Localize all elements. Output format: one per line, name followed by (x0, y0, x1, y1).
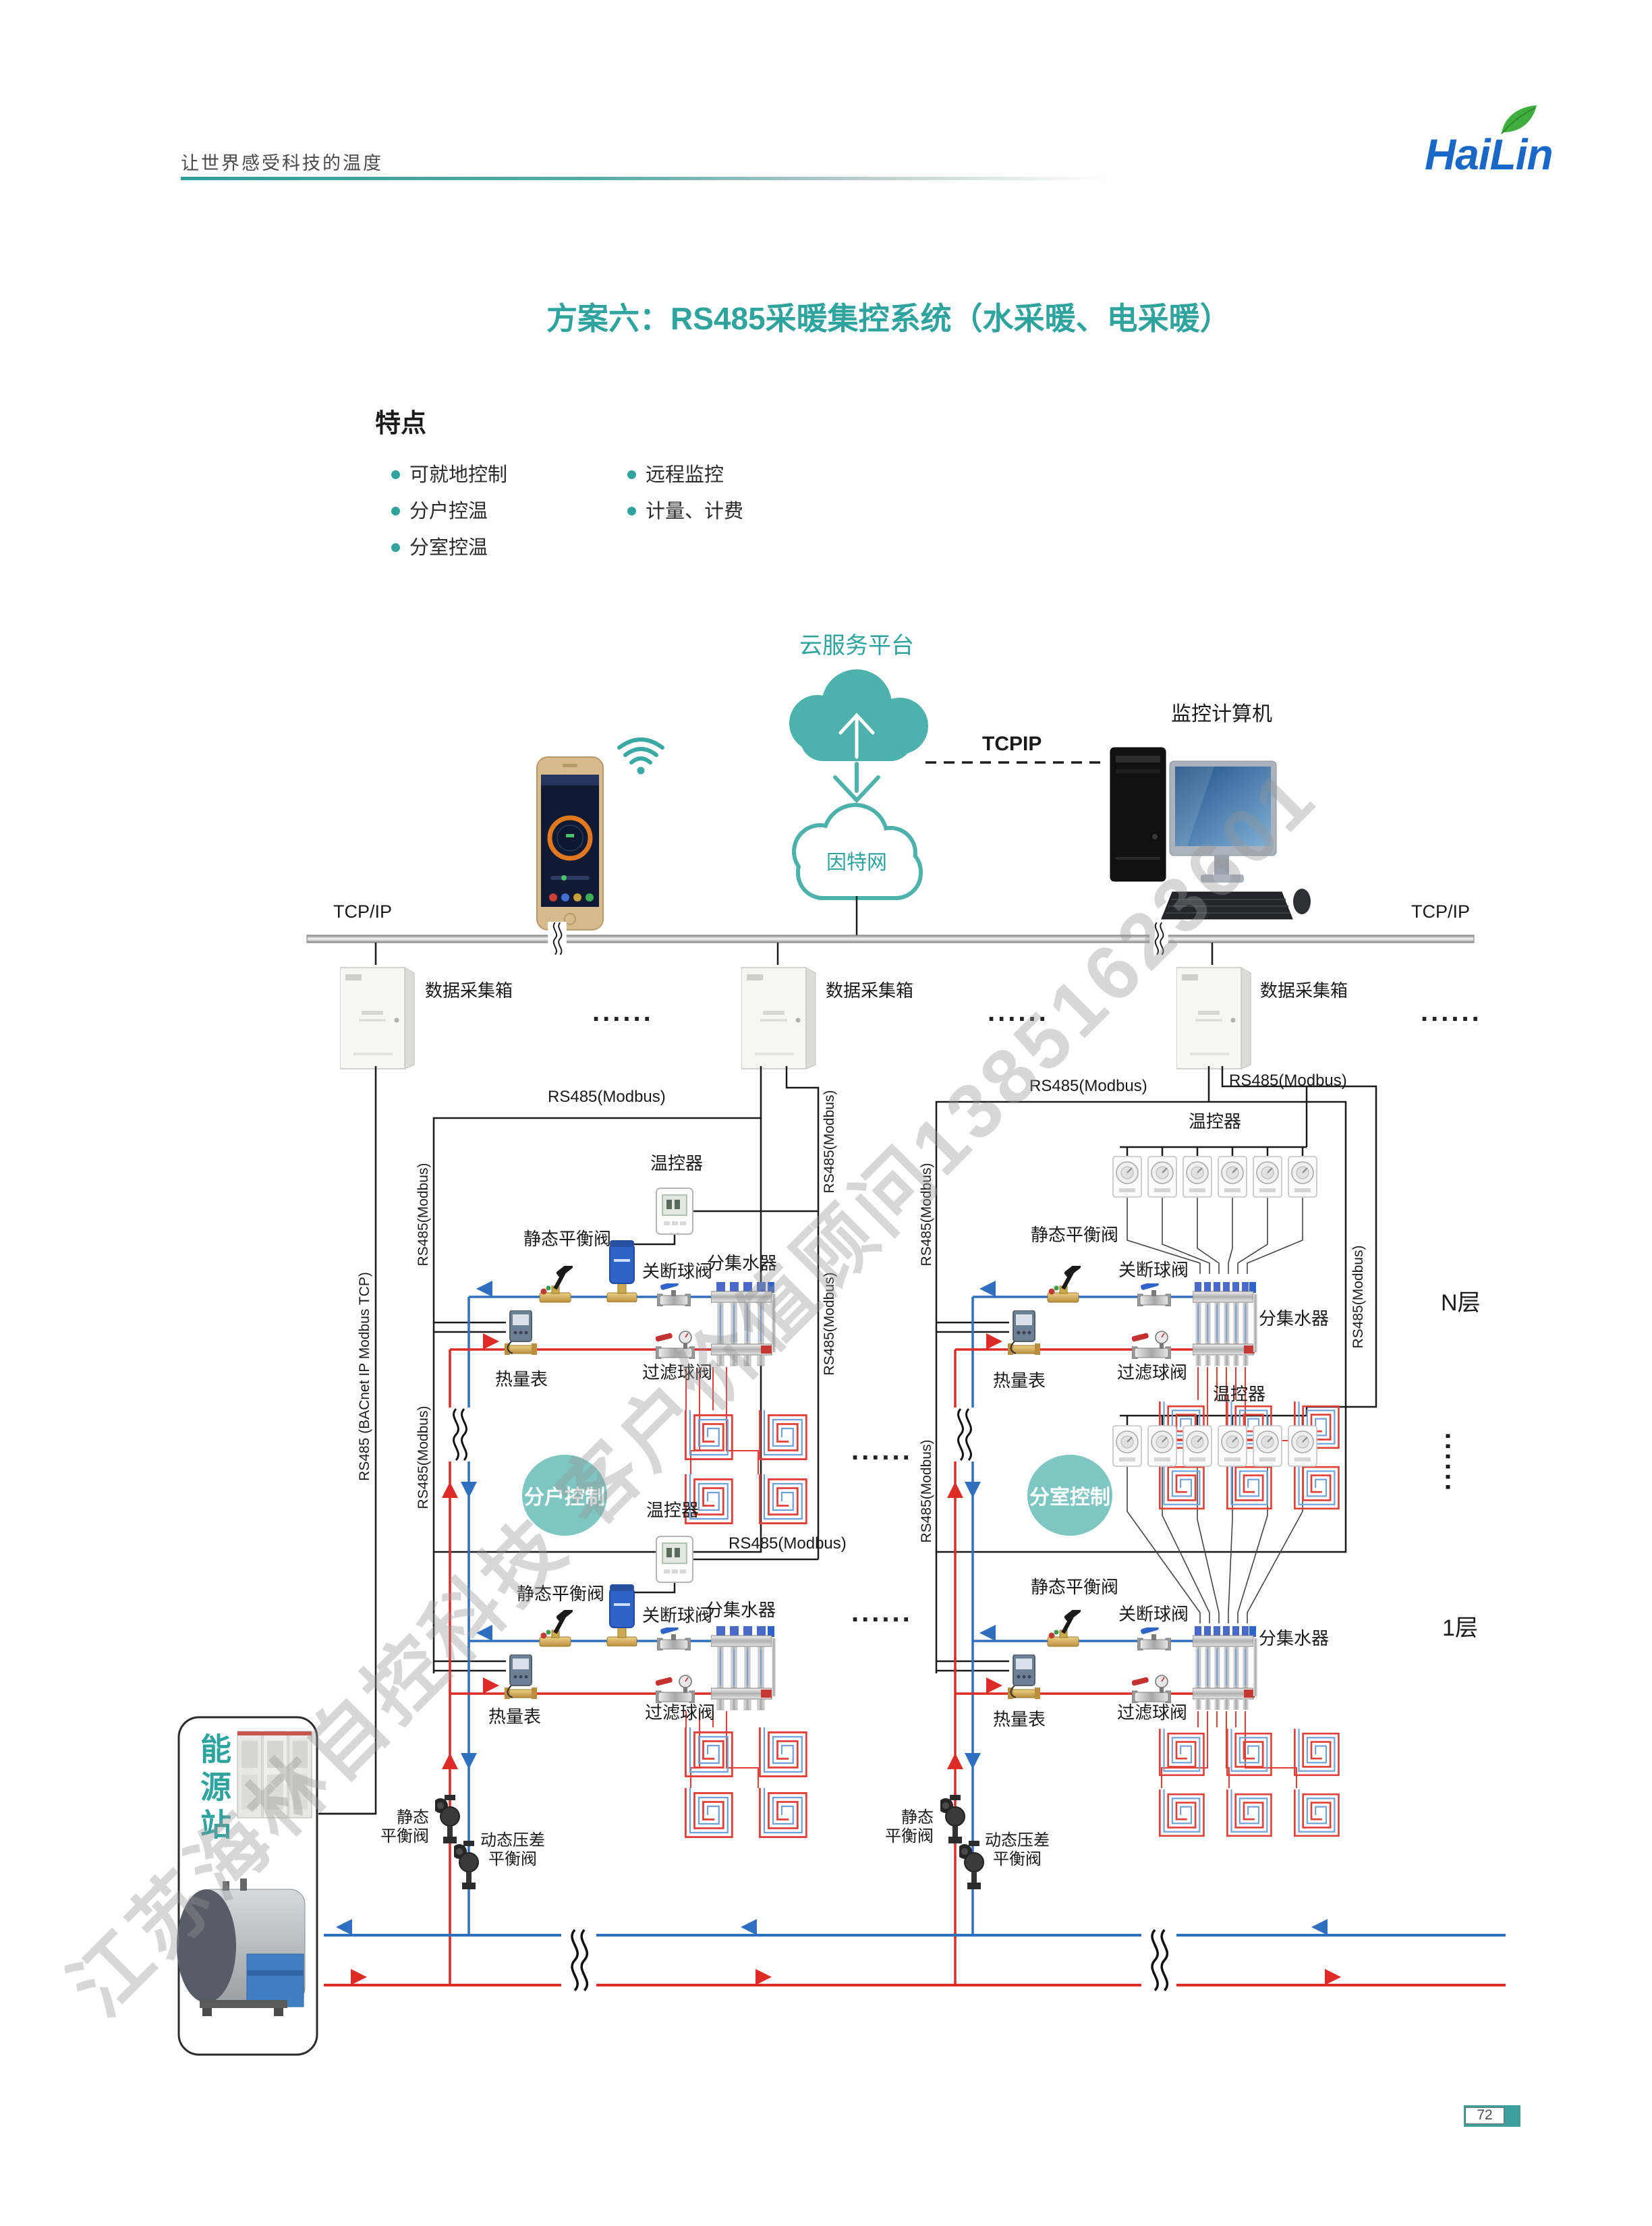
heat-meter-label: 热量表 (488, 1707, 541, 1727)
label-line: 静态 (370, 1808, 429, 1827)
ellipsis: ...... (851, 1436, 913, 1466)
rs485-vlabel: RS485(Modbus) (416, 1163, 432, 1267)
ellipsis: ...... (592, 997, 654, 1028)
feature-item: 分室控温 (391, 532, 488, 560)
feature-label: 计量、计费 (646, 501, 743, 522)
thermostat-label: 温控器 (1213, 1385, 1265, 1405)
feature-item: 计量、计费 (627, 495, 743, 524)
energy-station-label: 能源站 (192, 1733, 236, 1846)
tcpip-right-label: TCP/IP (1411, 901, 1470, 922)
rs485-label: RS485(Modbus) (1229, 1072, 1347, 1090)
label-line: 动态压差 (977, 1831, 1058, 1850)
label-line: 动态压差 (472, 1831, 553, 1850)
catalog-page: 让世界感受科技的温度 HaiLin 方案六：RS485采暖集控系统（水采暖、电采… (0, 0, 1652, 2226)
feature-label: 分户控温 (409, 501, 488, 522)
static-valve-label: 静态平衡阀 (523, 1229, 611, 1250)
static-valve-label: 静态平衡阀 (1031, 1578, 1118, 1598)
bullet-icon (627, 507, 636, 516)
static-valve-label: 静态平衡阀 (517, 1584, 604, 1605)
rs485-vlabel: RS485(Modbus) (919, 1440, 935, 1543)
page-number-badge: 72 (1464, 2105, 1520, 2127)
static-balance-valve-label: 静态 平衡阀 (874, 1808, 934, 1845)
floor-1-label: 1层 (1442, 1615, 1478, 1642)
rs485-label: RS485(Modbus) (1029, 1077, 1147, 1096)
shutoff-valve-label: 关断球阀 (1118, 1260, 1189, 1281)
ellipsis: ...... (851, 1598, 913, 1628)
bullet-icon (391, 507, 400, 516)
heat-meter-label: 热量表 (495, 1370, 548, 1390)
bacnet-label: RS485 (BACnet IP Modbus TCP) (357, 1272, 373, 1481)
rs485-label: RS485(Modbus) (729, 1534, 847, 1553)
thermostat-label: 温控器 (1189, 1112, 1241, 1132)
ellipsis: ...... (988, 997, 1049, 1028)
feature-label: 可就地控制 (409, 464, 507, 486)
header-slogan: 让世界感受科技的温度 (181, 148, 383, 175)
filter-valve-label: 过滤球阀 (645, 1703, 715, 1723)
cloud-platform-label: 云服务平台 (781, 633, 932, 659)
monitor-pc-label: 监控计算机 (1171, 703, 1272, 727)
manifold-label: 分集水器 (1259, 1309, 1329, 1329)
shutoff-valve-label: 关断球阀 (642, 1262, 712, 1282)
collector-label: 数据采集箱 (826, 981, 913, 1001)
label-line: 平衡阀 (874, 1827, 934, 1846)
label-line: 静态 (874, 1808, 934, 1827)
room-control-badge: 分室控制 (1027, 1455, 1112, 1536)
household-control-badge: 分户控制 (522, 1455, 607, 1536)
bullet-icon (391, 470, 400, 479)
thermostat-label: 温控器 (646, 1501, 699, 1521)
label-line: 平衡阀 (370, 1827, 429, 1846)
bullet-icon (627, 470, 636, 479)
feature-item: 可就地控制 (391, 459, 507, 487)
rs485-label: RS485(Modbus) (548, 1088, 666, 1107)
static-valve-label: 静态平衡阀 (1031, 1225, 1118, 1246)
filter-valve-label: 过滤球阀 (1117, 1363, 1187, 1383)
internet-label: 因特网 (818, 852, 896, 875)
shutoff-valve-label: 关断球阀 (1118, 1605, 1189, 1625)
dynamic-balance-valve-label: 动态压差 平衡阀 (472, 1831, 553, 1868)
rs485-vlabel: RS485(Modbus) (822, 1273, 838, 1376)
page-number: 72 (1465, 2107, 1504, 2124)
vertical-ellipsis: ...... (1440, 1432, 1470, 1494)
page-title: 方案六：RS485采暖集控系统（水采暖、电采暖） (546, 294, 1231, 339)
rs485-vlabel: RS485(Modbus) (919, 1163, 935, 1267)
manifold-label: 分集水器 (1259, 1629, 1329, 1649)
filter-valve-label: 过滤球阀 (1117, 1703, 1187, 1723)
filter-valve-label: 过滤球阀 (642, 1363, 712, 1383)
header-divider (181, 177, 1108, 180)
feature-label: 分室控温 (409, 537, 488, 559)
floor-n-label: N层 (1441, 1290, 1481, 1316)
features-heading: 特点 (375, 402, 426, 439)
shutoff-valve-label: 关断球阀 (642, 1606, 712, 1626)
rs485-vlabel: RS485(Modbus) (822, 1090, 838, 1194)
feature-item: 远程监控 (627, 459, 724, 487)
manifold-label: 分集水器 (707, 1254, 777, 1274)
heat-meter-label: 热量表 (993, 1710, 1046, 1730)
feature-item: 分户控温 (391, 495, 488, 524)
collector-label: 数据采集箱 (425, 981, 513, 1001)
static-balance-valve-label: 静态 平衡阀 (370, 1808, 429, 1845)
dynamic-balance-valve-label: 动态压差 平衡阀 (977, 1831, 1058, 1868)
feature-label: 远程监控 (646, 464, 724, 486)
thermostat-label: 温控器 (650, 1154, 703, 1174)
label-line: 平衡阀 (472, 1850, 553, 1869)
bullet-icon (391, 543, 400, 552)
ellipsis: ...... (1421, 997, 1482, 1028)
collector-label: 数据采集箱 (1260, 981, 1348, 1001)
tcpip-left-label: TCP/IP (333, 901, 392, 922)
rs485-vlabel: RS485(Modbus) (1350, 1246, 1367, 1349)
leaf-icon (1495, 103, 1542, 138)
heat-meter-label: 热量表 (993, 1371, 1046, 1391)
tcpip-link-label: TCPIP (982, 733, 1042, 756)
manifold-label: 分集水器 (706, 1601, 776, 1621)
label-line: 平衡阀 (977, 1850, 1058, 1869)
rs485-vlabel: RS485(Modbus) (416, 1406, 432, 1509)
